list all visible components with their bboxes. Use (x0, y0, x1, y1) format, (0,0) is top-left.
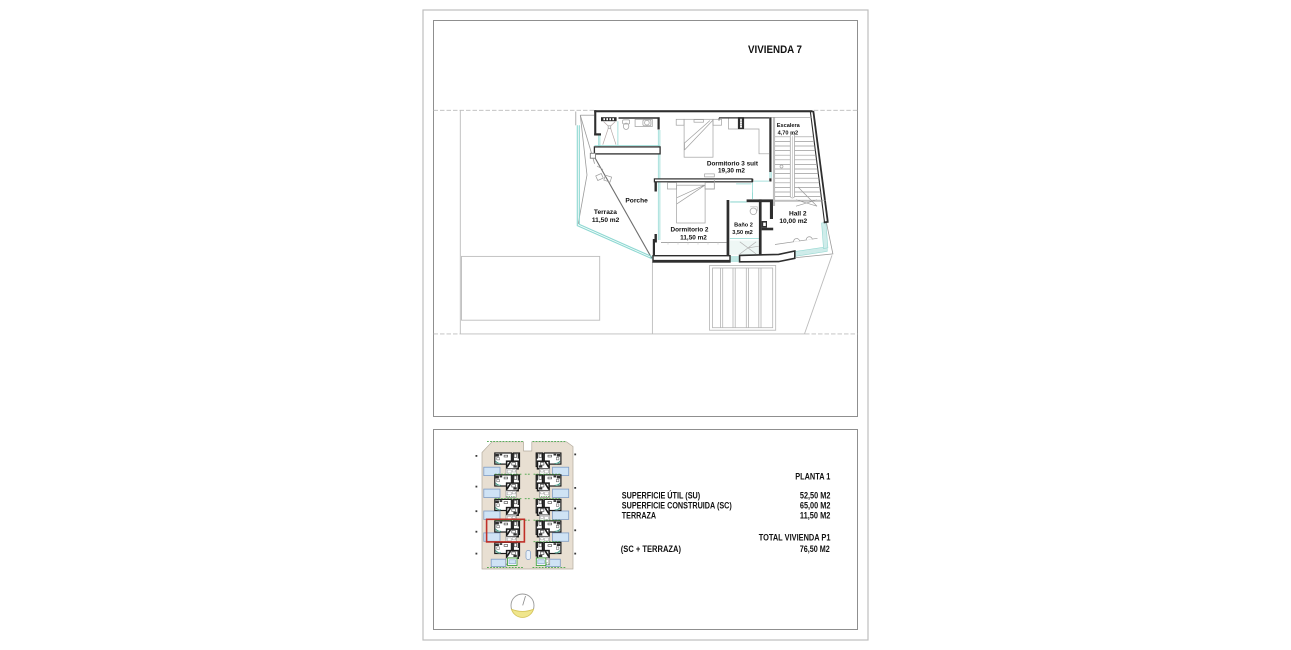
svg-text:10,00 m2: 10,00 m2 (779, 218, 807, 225)
svg-text:11,50 m2: 11,50 m2 (592, 217, 620, 224)
svg-text:Baño 2: Baño 2 (734, 222, 753, 228)
svg-text:Porche: Porche (625, 197, 648, 204)
svg-text:Escalera: Escalera (777, 123, 801, 129)
svg-text:Dormitorio 2: Dormitorio 2 (671, 226, 709, 233)
svg-text:Hall 2: Hall 2 (789, 210, 807, 217)
svg-text:Dormitorio 3 suit: Dormitorio 3 suit (707, 160, 759, 167)
svg-text:52,50 M2: 52,50 M2 (800, 491, 831, 501)
svg-text:11,50 m2: 11,50 m2 (680, 234, 707, 241)
svg-text:65,00 M2: 65,00 M2 (800, 501, 831, 511)
svg-text:TOTAL VIVIENDA P1: TOTAL VIVIENDA P1 (759, 533, 831, 543)
svg-text:(SC + TERRAZA): (SC + TERRAZA) (621, 544, 681, 554)
svg-text:19,30 m2: 19,30 m2 (718, 168, 745, 175)
svg-text:76,50 M2: 76,50 M2 (800, 544, 830, 554)
svg-text:VIVIENDA 7: VIVIENDA 7 (748, 44, 802, 56)
svg-text:TERRAZA: TERRAZA (622, 511, 657, 521)
svg-text:3,50 m2: 3,50 m2 (732, 230, 753, 236)
svg-text:PLANTA 1: PLANTA 1 (795, 472, 830, 482)
svg-text:4,70 m2: 4,70 m2 (778, 130, 799, 136)
svg-text:SUPERFICIE ÚTIL (SU): SUPERFICIE ÚTIL (SU) (622, 490, 700, 501)
svg-text:Terraza: Terraza (594, 209, 617, 216)
svg-text:11,50 M2: 11,50 M2 (800, 511, 831, 521)
svg-text:SUPERFICIE CONSTRUIDA (SC): SUPERFICIE CONSTRUIDA (SC) (622, 501, 732, 511)
